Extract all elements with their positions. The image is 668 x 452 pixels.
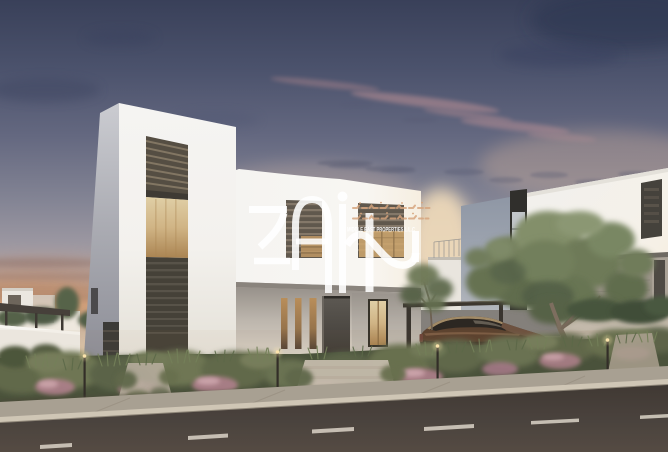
svg-text:MIDDLE EAST PROPERTIES L.L.C: MIDDLE EAST PROPERTIES L.L.C [347,228,415,234]
